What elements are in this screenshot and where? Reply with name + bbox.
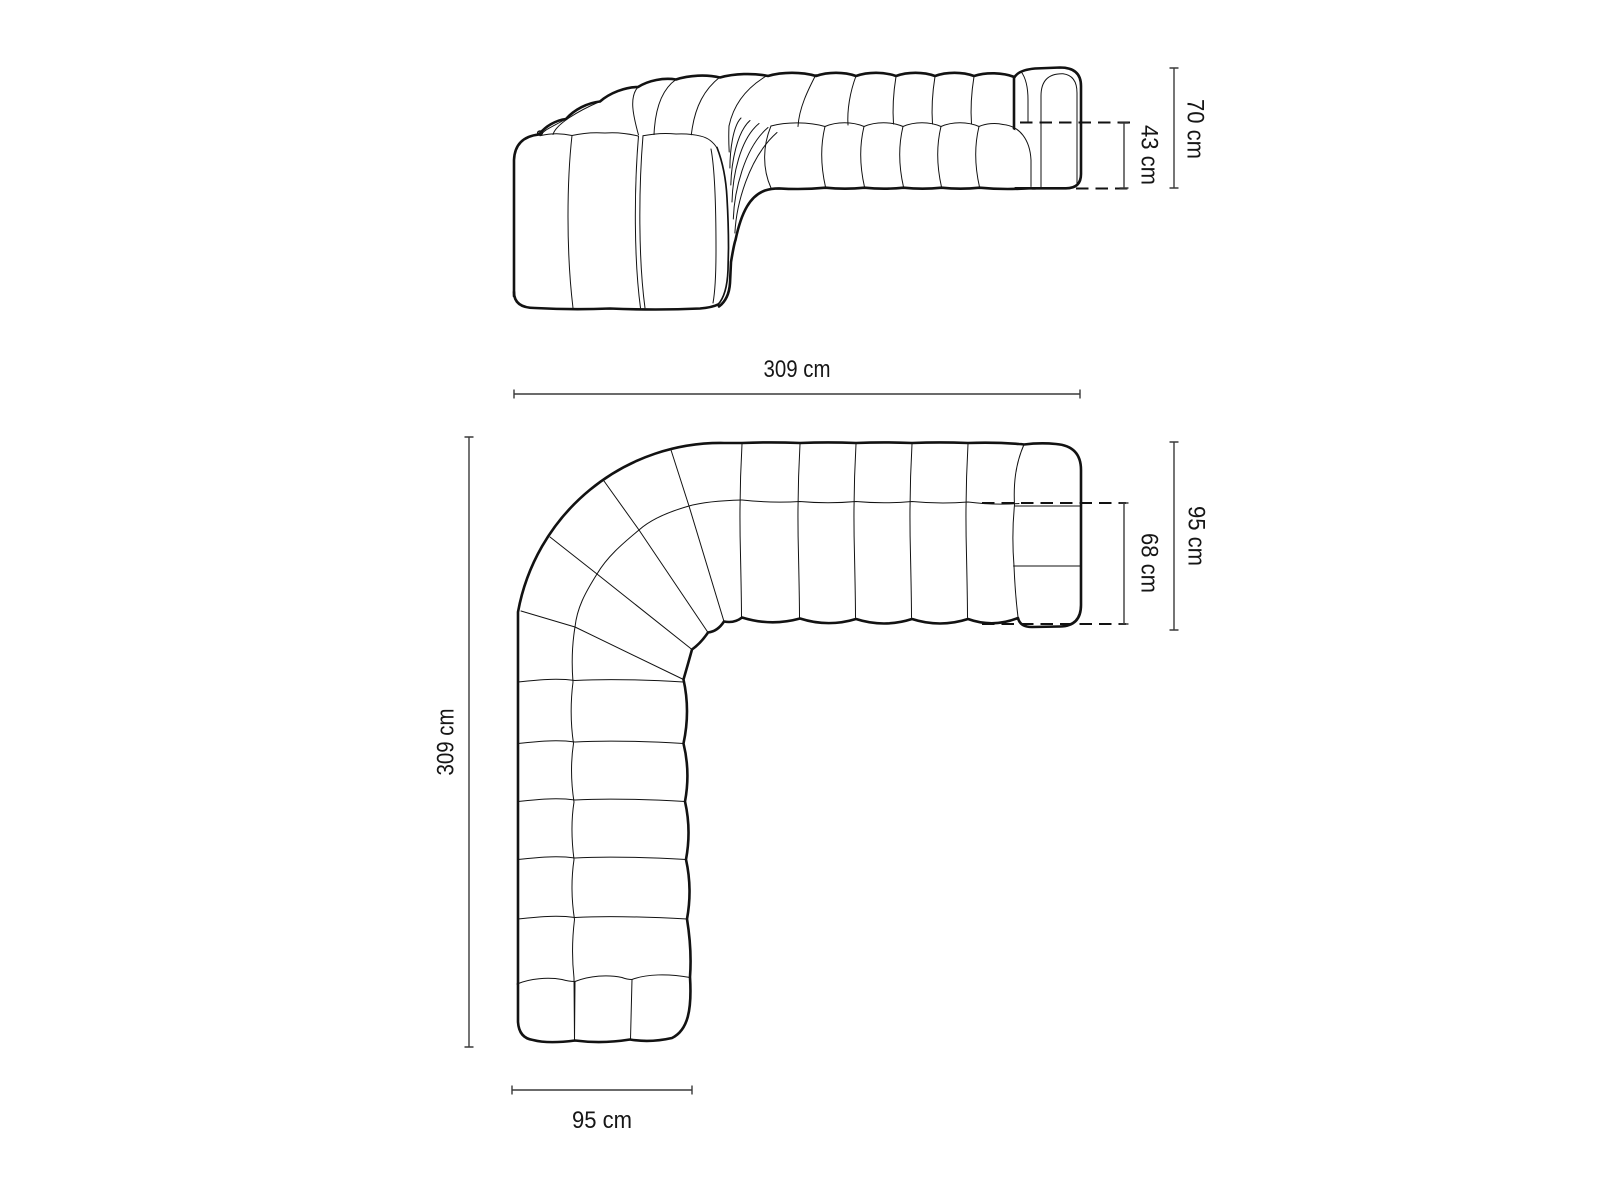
svg-text:95 cm: 95 cm	[1183, 506, 1210, 566]
svg-text:70 cm: 70 cm	[1182, 99, 1209, 159]
svg-text:309 cm: 309 cm	[764, 356, 831, 383]
svg-text:43 cm: 43 cm	[1136, 125, 1163, 185]
svg-text:68 cm: 68 cm	[1136, 533, 1163, 593]
svg-text:309 cm: 309 cm	[433, 709, 460, 776]
svg-text:95 cm: 95 cm	[572, 1107, 632, 1134]
